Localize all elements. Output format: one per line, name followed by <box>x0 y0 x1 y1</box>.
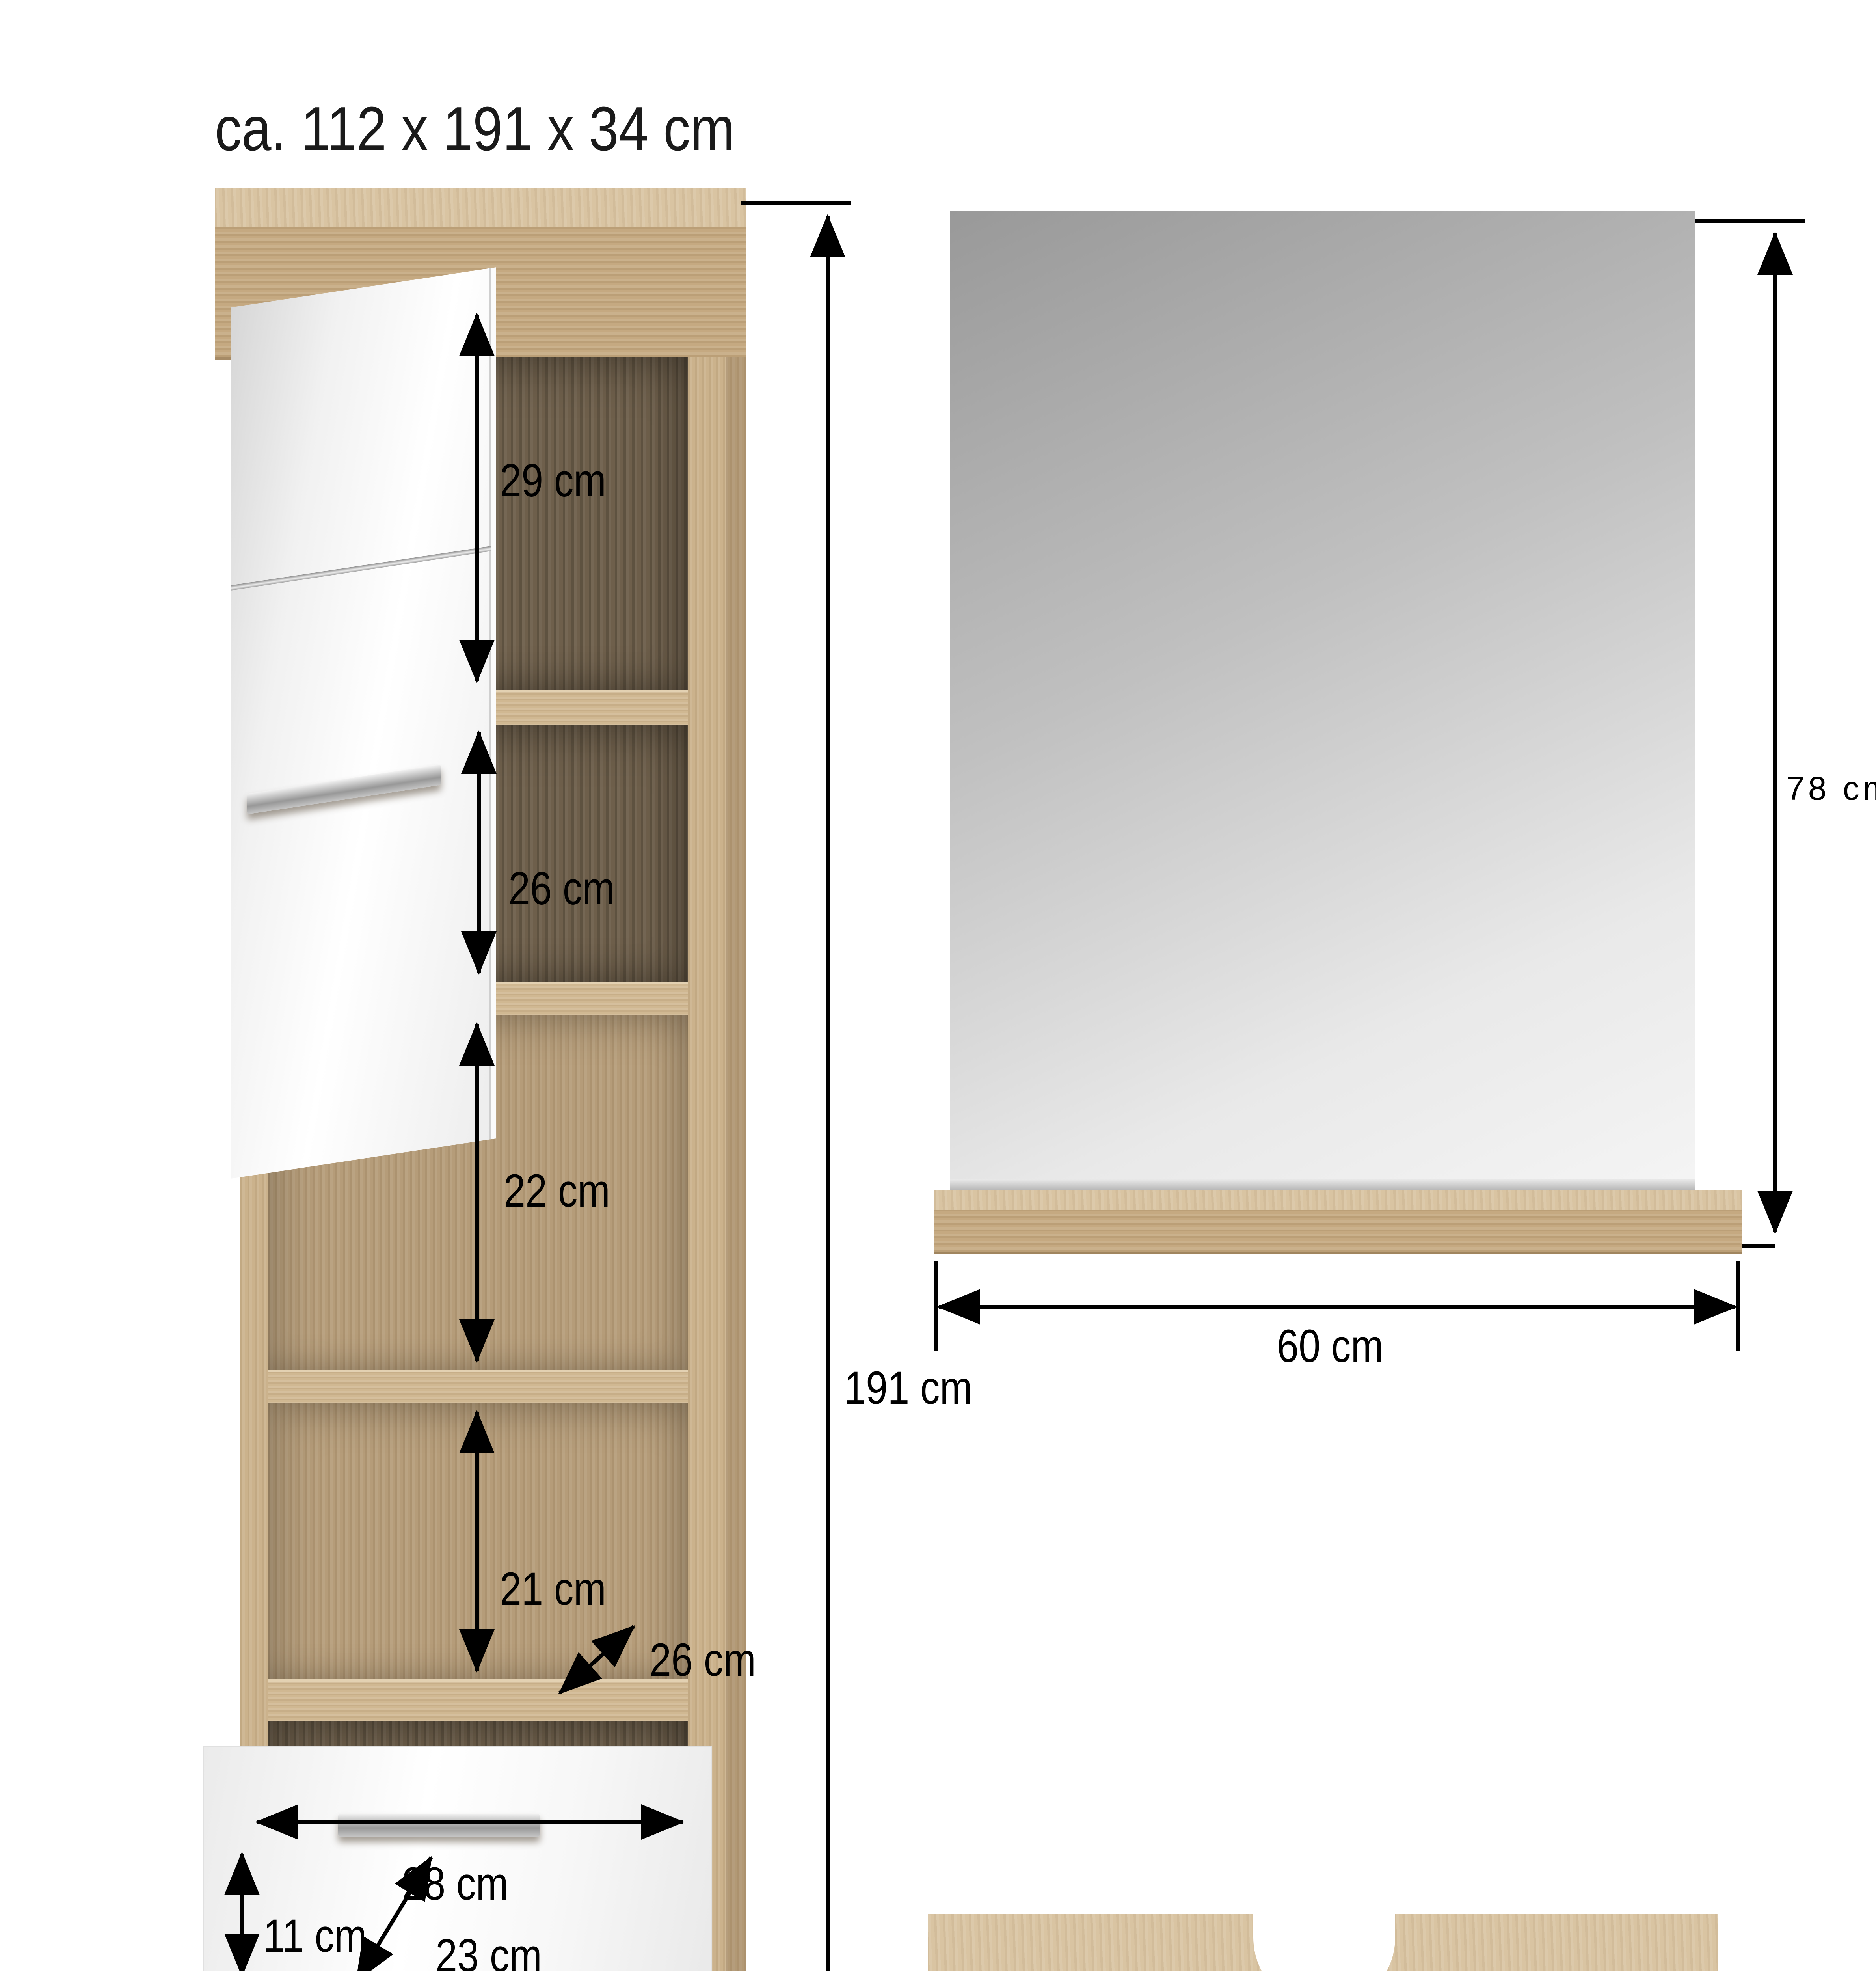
dim-78 <box>1695 221 1805 1246</box>
page-title: ca. 112 x 191 x 34 cm <box>215 98 735 160</box>
label-78-mirror: 78 cm <box>1786 772 1876 805</box>
label-23-depth: 23 cm <box>435 1932 542 1971</box>
label-60-mirror: 60 cm <box>1277 1323 1383 1369</box>
dimension-lines <box>0 0 1876 1971</box>
label-11: 11 cm <box>263 1913 367 1959</box>
label-29-top: 29 cm <box>500 457 606 504</box>
label-28-width: 28 cm <box>402 1861 508 1907</box>
dimension-diagram: ca. 112 x 191 x 34 cm <box>0 0 1876 1971</box>
dim-26-depth <box>560 1626 634 1693</box>
label-191: 191 cm <box>844 1365 972 1411</box>
label-26: 26 cm <box>508 865 615 912</box>
label-26-depth: 26 cm <box>650 1637 756 1683</box>
dim-191 <box>729 203 851 1971</box>
label-21: 21 cm <box>500 1566 606 1612</box>
label-22: 22 cm <box>504 1168 610 1214</box>
